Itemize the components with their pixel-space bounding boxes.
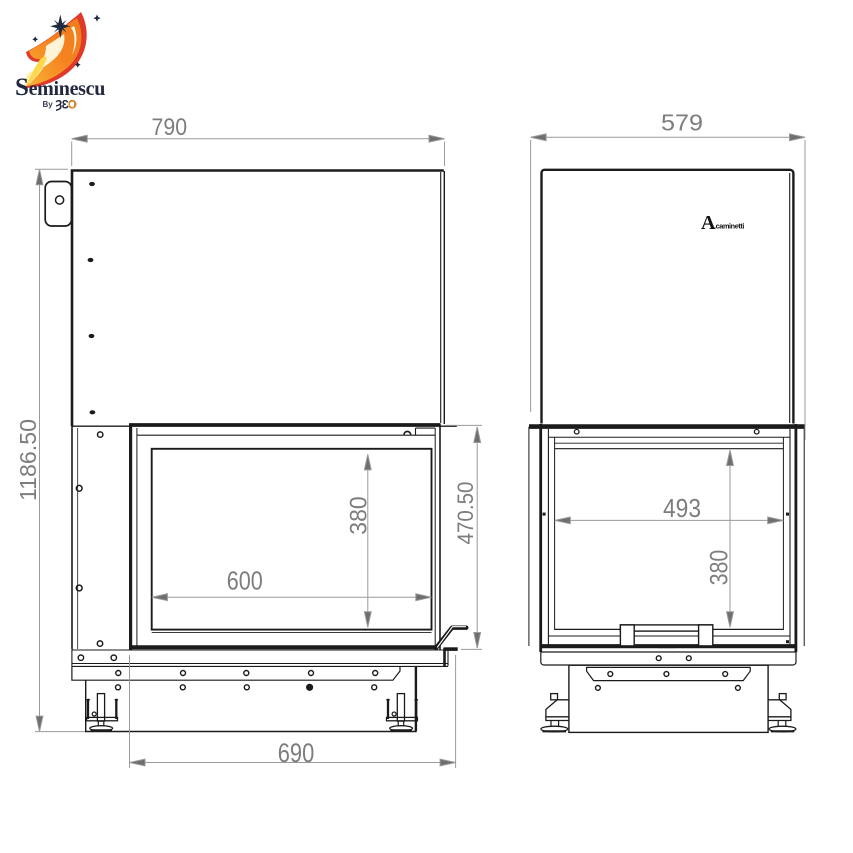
svg-text:380: 380	[705, 550, 733, 585]
svg-text:Seminescu: Seminescu	[15, 74, 105, 101]
svg-text:.caminetti: .caminetti	[714, 222, 744, 231]
svg-text:790: 790	[152, 114, 188, 141]
svg-text:600: 600	[227, 568, 263, 596]
svg-text:690: 690	[278, 738, 315, 768]
svg-text:1186.50: 1186.50	[15, 419, 41, 501]
svg-text:493: 493	[663, 493, 701, 523]
svg-text:380: 380	[345, 496, 372, 534]
svg-text:By: By	[43, 100, 54, 109]
svg-text:579: 579	[661, 109, 703, 135]
svg-text:470.50: 470.50	[453, 482, 478, 545]
